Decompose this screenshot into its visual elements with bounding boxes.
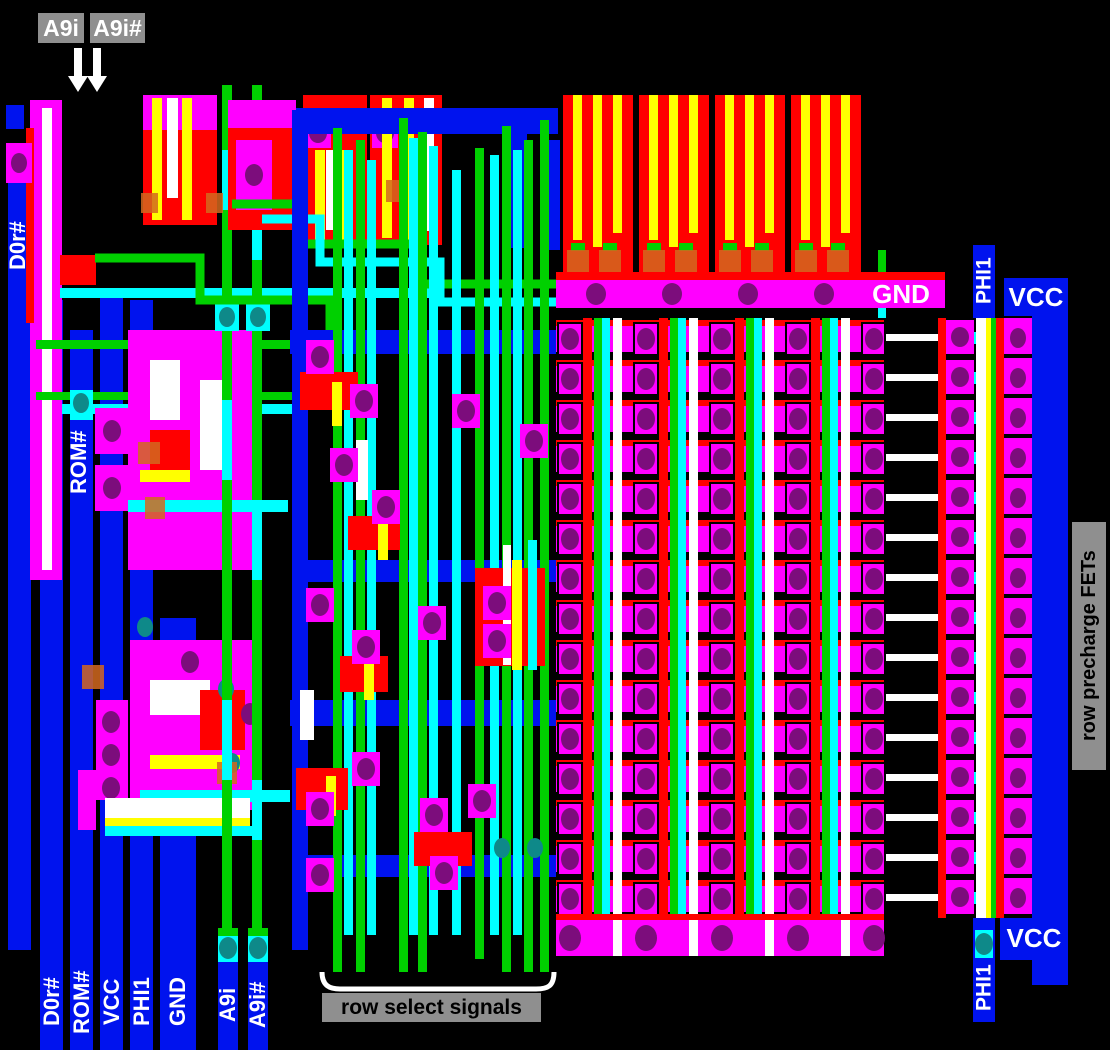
rom-rail-label-top: ROM# bbox=[66, 395, 92, 530]
bus-label-a9i-b: A9i# bbox=[246, 963, 270, 1047]
vcc-rail-label-bottom: VCC bbox=[1002, 923, 1066, 953]
a9i-b-callout: A9i# bbox=[90, 13, 145, 43]
row-precharge-callout: row precharge FETs bbox=[1072, 522, 1106, 770]
bus-label-phi1: PHI1 bbox=[130, 958, 154, 1046]
bus-label-gnd: GND bbox=[166, 958, 190, 1046]
layout-artwork bbox=[0, 0, 1110, 1050]
bus-label-vcc: VCC bbox=[100, 958, 124, 1046]
row-select-callout: row select signals bbox=[322, 993, 541, 1022]
a9i-callout: A9i bbox=[38, 13, 84, 43]
rom-array bbox=[556, 318, 885, 956]
bus-label-rom: ROM# bbox=[70, 958, 94, 1046]
row-precharge-fets bbox=[884, 245, 1068, 1022]
d0r-rail-label-top: D0r# bbox=[5, 185, 31, 307]
vcc-rail-label-top: VCC bbox=[1004, 282, 1068, 312]
bus-label-d0r: D0r# bbox=[40, 958, 64, 1046]
bus-label-a9i: A9i bbox=[216, 963, 240, 1047]
phi1-rail-label-top: PHI1 bbox=[971, 246, 997, 316]
gnd-rail-label: GND bbox=[862, 280, 940, 308]
chip-die-layout: A9i A9i# D0r# ROM# GND PHI1 VCC row prec… bbox=[0, 0, 1110, 1050]
phi1-rail-label-bottom: PHI1 bbox=[971, 955, 997, 1020]
